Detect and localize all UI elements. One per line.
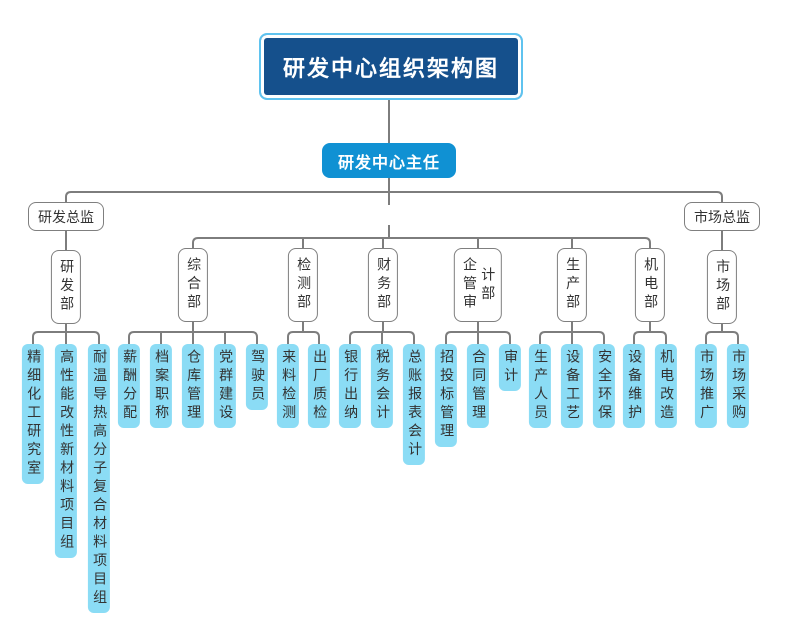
leaf-node: 市场推广 xyxy=(695,344,717,428)
leaf-node: 机电改造 xyxy=(655,344,677,428)
dept-node-general: 综合部 xyxy=(178,248,208,322)
leaf-node: 审计 xyxy=(499,344,521,391)
chart-title: 研发中心组织架构图 xyxy=(259,33,523,100)
leaf-node: 驾驶员 xyxy=(246,344,268,410)
dept-node-testing: 检测部 xyxy=(288,248,318,322)
leaf-node: 安全环保 xyxy=(593,344,615,428)
leaf-node: 设备工艺 xyxy=(561,344,583,428)
leaf-node: 党群建设 xyxy=(214,344,236,428)
leaf-node: 仓库管理 xyxy=(182,344,204,428)
dept-node-finance: 财务部 xyxy=(368,248,398,322)
leaf-node: 合同管理 xyxy=(467,344,489,428)
leaf-node: 薪酬分配 xyxy=(118,344,140,428)
leaf-node: 市场采购 xyxy=(727,344,749,428)
director-node-rd: 研发总监 xyxy=(28,202,104,231)
leaf-node: 银行出纳 xyxy=(339,344,361,428)
dept-node-mechatronics: 机电部 xyxy=(635,248,665,322)
leaf-node: 设备维护 xyxy=(623,344,645,428)
leaf-node: 总账报表会计 xyxy=(403,344,425,465)
leaf-node: 税务会计 xyxy=(371,344,393,428)
leaf-node: 出厂质检 xyxy=(308,344,330,428)
leaf-node: 生产人员 xyxy=(529,344,551,428)
director-node-market: 市场总监 xyxy=(684,202,760,231)
leaf-node: 耐温导热高分子复合材料项目组 xyxy=(88,344,110,613)
dept-node-market: 市场部 xyxy=(707,250,737,324)
dept-node-rd: 研发部 xyxy=(51,250,81,324)
org-chart-canvas: 研发中心组织架构图 研发中心主任 研发总监 市场总监 研发部 综合部 检测部 财… xyxy=(0,0,795,641)
leaf-node: 招投标管理 xyxy=(435,344,457,447)
root-node: 研发中心主任 xyxy=(322,143,456,178)
leaf-node: 来料检测 xyxy=(277,344,299,428)
leaf-node: 高性能改性新材料项目组 xyxy=(55,344,77,558)
leaf-node: 档案职称 xyxy=(150,344,172,428)
dept-node-audit: 企管审计部 xyxy=(454,248,502,322)
dept-node-production: 生产部 xyxy=(557,248,587,322)
leaf-node: 精细化工研究室 xyxy=(22,344,44,484)
